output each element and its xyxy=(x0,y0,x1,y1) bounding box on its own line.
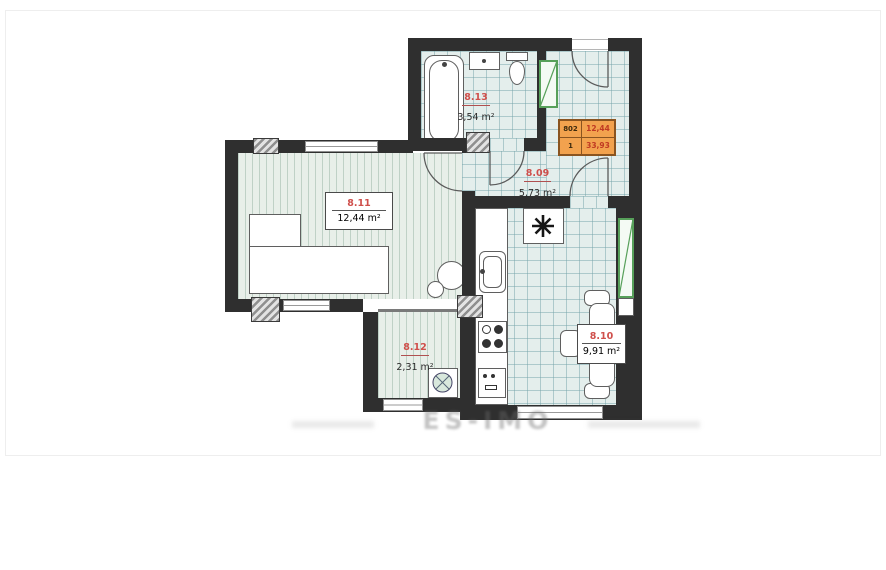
wall xyxy=(408,38,572,51)
room-area: 12,44 m² xyxy=(337,213,380,224)
bathtub-faucet-icon xyxy=(442,62,447,67)
wall xyxy=(460,312,475,405)
unit-total-area: 33,93 xyxy=(582,138,614,155)
hatched-pillar xyxy=(251,297,280,322)
room-label-living: 8.11 12,44 m² xyxy=(325,192,393,230)
watermark: ES-IMO xyxy=(368,406,608,435)
shaft-box xyxy=(618,298,634,316)
wall xyxy=(408,38,421,141)
kitchen-sink-basin xyxy=(483,256,502,288)
wall xyxy=(408,138,470,151)
kitchen-door-floor-patch xyxy=(570,196,608,208)
closet-opening-line xyxy=(378,309,460,312)
room-area: 5,73 m² xyxy=(519,188,556,199)
toilet-tank xyxy=(506,52,528,61)
room-area: 3,54 m² xyxy=(457,112,494,123)
label-divider xyxy=(582,343,621,344)
label-divider xyxy=(332,210,386,211)
entrance-opening xyxy=(572,39,608,50)
wall xyxy=(462,191,475,312)
room-number: 8.09 xyxy=(524,169,551,182)
room-number: 8.11 xyxy=(347,198,370,209)
burner-icon xyxy=(494,325,503,334)
room-area: 9,91 m² xyxy=(583,346,620,357)
room-number: 8.13 xyxy=(462,93,489,106)
hatched-pillar xyxy=(253,138,279,154)
side-table-small xyxy=(427,281,444,298)
oven-knob-icon xyxy=(491,374,495,378)
burner-icon xyxy=(482,325,491,334)
room-number: 8.10 xyxy=(590,331,613,342)
sink-faucet-icon xyxy=(482,59,486,63)
hatched-pillar xyxy=(466,132,490,153)
hatched-pillar xyxy=(457,295,483,318)
room-label-kitchen: 8.10 9,91 m² xyxy=(577,324,626,364)
ventilation-shaft xyxy=(618,218,634,298)
oven-door-icon xyxy=(485,385,497,390)
window-living-top xyxy=(305,141,378,152)
ventilation-shaft xyxy=(539,60,558,108)
unit-living-area: 12,44 xyxy=(582,121,614,138)
room-number: 8.12 xyxy=(401,343,428,356)
unit-info-badge: 802 12,44 1 33,93 xyxy=(558,119,616,156)
bathroom-door-floor-patch xyxy=(490,138,524,151)
unit-room-count: 1 xyxy=(560,138,582,155)
cooker-hood xyxy=(523,208,564,244)
floor-plan-canvas: 8.11 12,44 m² 8.13 3,54 m² 8.09 5,73 m² … xyxy=(0,0,886,570)
unit-number: 802 xyxy=(560,121,582,138)
room-area: 2,31 m² xyxy=(396,362,433,373)
room-label-bathroom: 8.13 3,54 m² xyxy=(440,86,512,124)
wall xyxy=(225,140,238,312)
sofa-seat xyxy=(249,246,389,294)
burner-icon xyxy=(494,339,503,348)
oven-knob-icon xyxy=(483,374,487,378)
room-label-hallway: 8.09 5,73 m² xyxy=(500,162,575,200)
kitchen-faucet-icon xyxy=(480,269,485,274)
oven xyxy=(478,368,506,398)
window-living-bottom xyxy=(283,300,330,311)
burner-icon xyxy=(482,339,491,348)
wall xyxy=(524,138,546,151)
wall xyxy=(363,312,378,412)
stove xyxy=(478,321,507,353)
room-label-closet: 8.12 2,31 m² xyxy=(380,336,450,374)
wall xyxy=(629,38,642,208)
watermark-smudge xyxy=(292,421,374,428)
